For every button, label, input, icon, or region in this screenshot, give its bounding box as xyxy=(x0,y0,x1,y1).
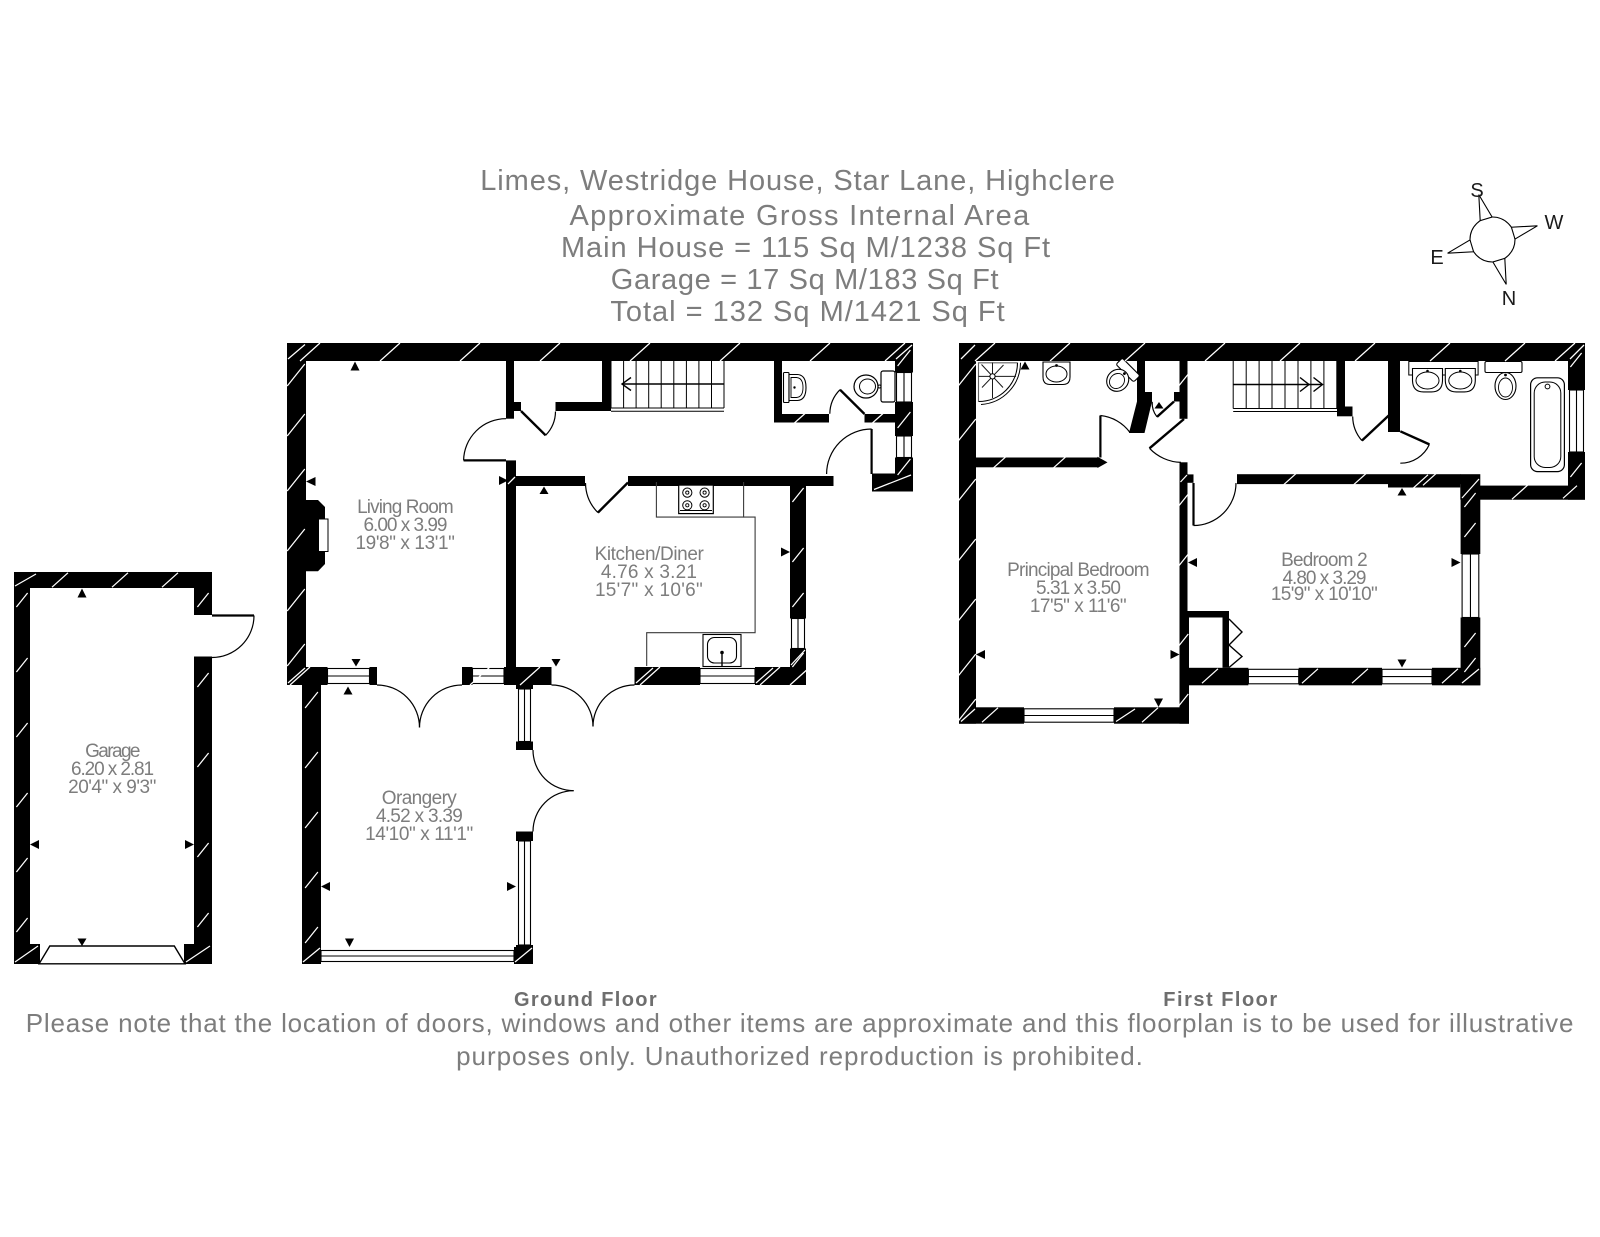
svg-text:E: E xyxy=(1430,247,1443,269)
svg-text:Total = 132 Sq M/1421 Sq Ft: Total = 132 Sq M/1421 Sq Ft xyxy=(610,296,1005,328)
svg-text:Please note that the location: Please note that the location of doors, … xyxy=(26,1008,1574,1038)
svg-text:purposes only. Unauthorized re: purposes only. Unauthorized reproduction… xyxy=(456,1041,1144,1071)
svg-text:14'10" x 11'1": 14'10" x 11'1" xyxy=(365,824,473,845)
svg-text:19'8" x 13'1": 19'8" x 13'1" xyxy=(355,533,454,554)
svg-text:20'4" x 9'3": 20'4" x 9'3" xyxy=(68,777,156,798)
svg-text:Main House = 115 Sq M/1238 Sq: Main House = 115 Sq M/1238 Sq Ft xyxy=(561,232,1051,264)
svg-text:W: W xyxy=(1545,212,1564,234)
svg-text:17'5" x 11'6": 17'5" x 11'6" xyxy=(1030,596,1126,617)
svg-text:Garage = 17 Sq M/183 Sq Ft: Garage = 17 Sq M/183 Sq Ft xyxy=(611,264,999,296)
svg-text:N: N xyxy=(1502,288,1516,310)
svg-text:Limes, Westridge House, Star L: Limes, Westridge House, Star Lane, Highc… xyxy=(480,165,1115,197)
svg-text:Approximate Gross Internal Are: Approximate Gross Internal Area xyxy=(570,200,1031,232)
svg-text:15'7" x 10'6": 15'7" x 10'6" xyxy=(595,580,703,601)
svg-text:S: S xyxy=(1470,180,1483,202)
svg-text:15'9" x 10'10": 15'9" x 10'10" xyxy=(1271,584,1377,605)
